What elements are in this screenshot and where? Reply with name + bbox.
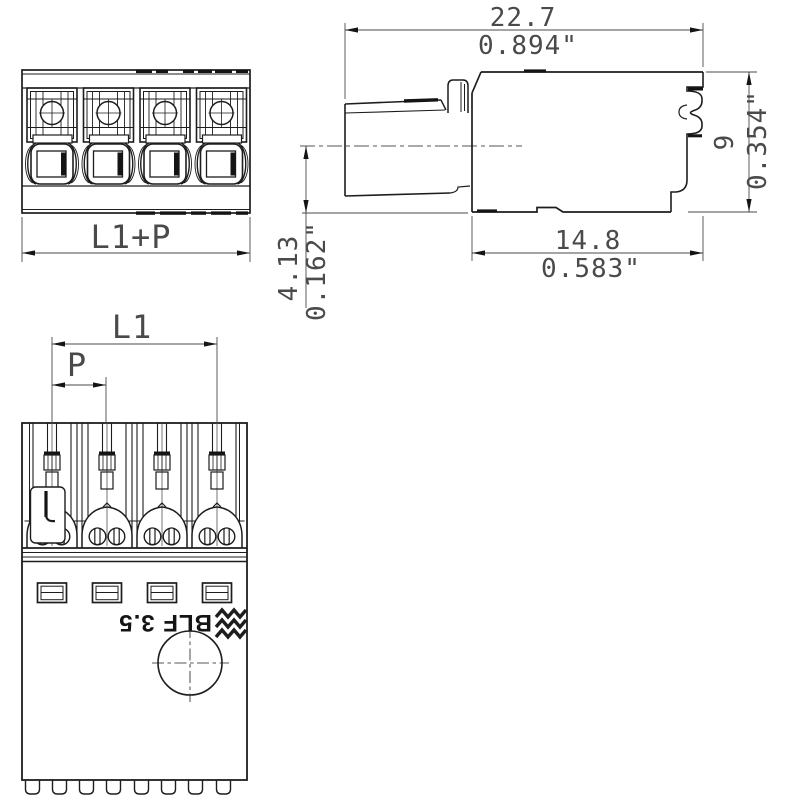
plug-housing-outline <box>22 423 247 780</box>
side-view: 22.7 0.894" 14.8 0.583" 9 0.354" <box>274 3 773 321</box>
drawing-sheet: L1+P <box>0 0 800 800</box>
dim-side-height: 9 0.354" <box>688 72 773 212</box>
dim-side-depth-in: 0.583" <box>541 254 641 284</box>
side-latch-profile <box>671 72 703 212</box>
dim-plug-pitch: P <box>52 346 106 424</box>
weidmueller-logo <box>216 610 246 637</box>
dim-front-total-label: L1+P <box>90 218 171 256</box>
dim-side-axis: 4.13 0.162" <box>274 146 468 321</box>
dim-side-height-in: 0.354" <box>743 90 773 190</box>
plug-solder-feet <box>26 780 231 794</box>
plug-actuation-lever <box>31 487 66 543</box>
dim-side-depth: 14.8 0.583" <box>472 216 703 284</box>
side-release-lever <box>448 80 468 113</box>
dim-side-height-mm: 9 <box>710 134 740 151</box>
plug-view: BLF 3.5 L1 <box>22 308 247 794</box>
dim-side-depth-mm: 14.8 <box>555 226 622 256</box>
dim-side-width-in: 0.894" <box>478 31 578 61</box>
dim-front-total: L1+P <box>22 217 250 262</box>
dim-plug-length-label: L1 <box>112 308 153 346</box>
dim-side-axis-mm: 4.13 <box>274 235 304 302</box>
dim-plug-pitch-label: P <box>67 346 87 384</box>
technical-drawing: L1+P <box>0 0 800 800</box>
front-view: L1+P <box>22 70 250 262</box>
side-bottom-edge <box>472 208 671 213</box>
dim-side-width-mm: 22.7 <box>490 3 557 33</box>
dim-side-width: 22.7 0.894" <box>345 3 703 99</box>
side-main-body <box>472 69 703 212</box>
dim-side-axis-in: 0.162" <box>302 221 332 321</box>
